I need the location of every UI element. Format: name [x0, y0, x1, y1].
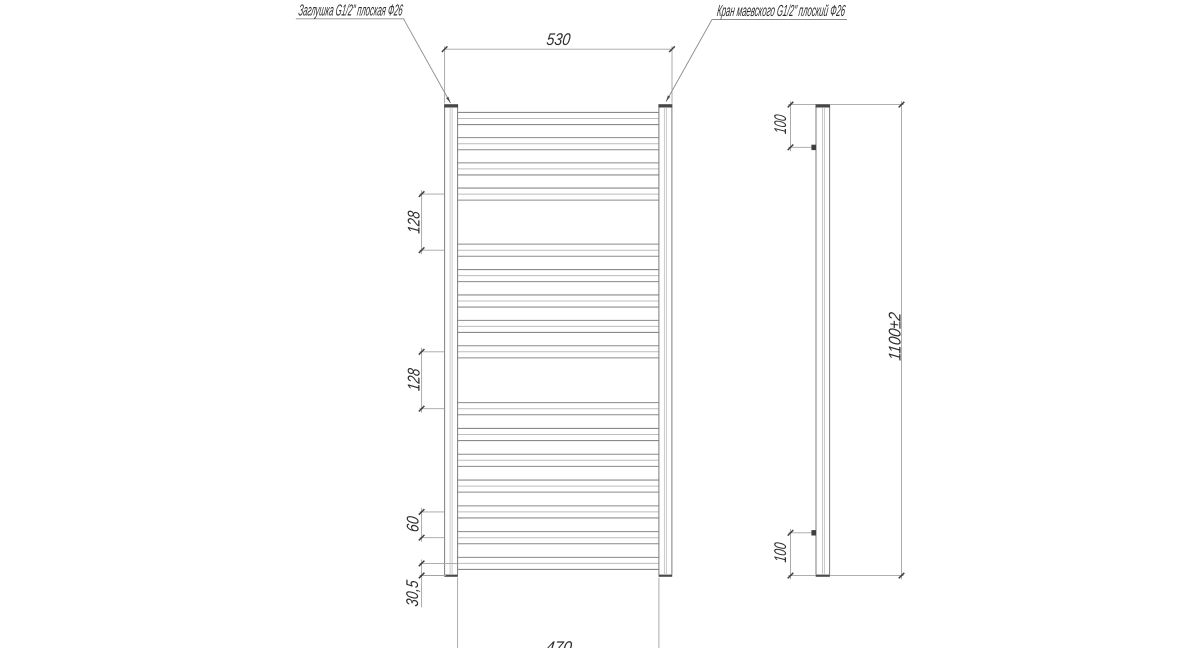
- svg-text:128: 128: [405, 367, 424, 392]
- svg-text:Кран маевского G1/2" плоский Ф: Кран маевского G1/2" плоский Ф26: [716, 2, 847, 20]
- svg-text:30,5: 30,5: [403, 579, 422, 608]
- svg-text:60: 60: [404, 515, 423, 533]
- svg-text:1100±2: 1100±2: [886, 311, 905, 362]
- svg-text:530: 530: [545, 30, 571, 49]
- svg-text:470: 470: [545, 638, 574, 648]
- svg-text:Заглушка G1/2" плоская Ф26: Заглушка G1/2" плоская Ф26: [297, 1, 404, 19]
- svg-text:100: 100: [771, 541, 790, 563]
- svg-text:128: 128: [405, 209, 424, 234]
- svg-text:100: 100: [771, 113, 790, 134]
